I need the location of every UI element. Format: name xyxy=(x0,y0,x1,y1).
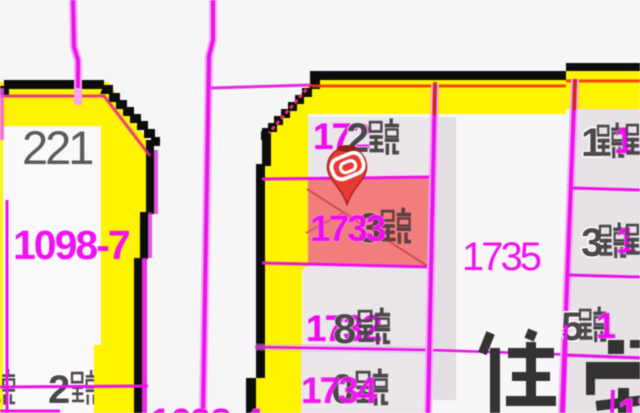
svg-text:2: 2 xyxy=(48,368,70,412)
svg-text:1733: 1733 xyxy=(310,208,386,249)
svg-text:221: 221 xyxy=(22,121,92,174)
svg-text:1734: 1734 xyxy=(301,370,378,411)
svg-text:1698-4: 1698-4 xyxy=(150,402,263,413)
svg-text:1: 1 xyxy=(596,305,616,346)
svg-text:17: 17 xyxy=(618,392,640,413)
svg-text:8: 8 xyxy=(333,305,356,352)
svg-text:1: 1 xyxy=(581,121,603,165)
svg-text:1735: 1735 xyxy=(462,235,541,279)
svg-text:1098-7: 1098-7 xyxy=(13,222,129,268)
